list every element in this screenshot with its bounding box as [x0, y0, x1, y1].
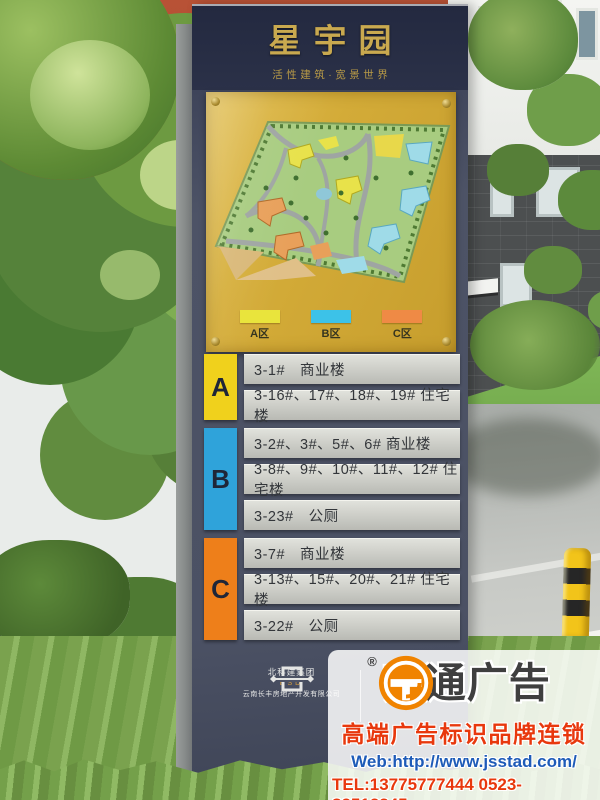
directory-row: 3-2#、3#、5#、6# 商业楼: [244, 428, 460, 458]
registered-trademark-symbol: ®: [367, 654, 377, 669]
window: [490, 177, 514, 217]
developer-logo-block: 北科建集团 BSD 云南长丰房地产开发有限公司: [243, 666, 341, 699]
directory-row: 3-1# 商业楼: [244, 354, 460, 384]
watermark-brand-row: ® 苏通广告: [377, 654, 551, 712]
developer-logo-icon: [270, 666, 314, 692]
directory-row: 3-22# 公厕: [244, 610, 460, 640]
section-rows-b: 3-2#、3#、5#、6# 商业楼 3-8#、9#、10#、11#、12# 住宅…: [244, 428, 460, 530]
right-tree: [468, 0, 578, 90]
map-legend: A区 B区 C区: [206, 306, 456, 344]
legend-label-b: B区: [322, 325, 341, 341]
legend-item-b: B区: [311, 310, 351, 341]
yellow-black-bollard: [562, 548, 591, 639]
directory-row: 3-13#、15#、20#、21# 住宅楼: [244, 574, 460, 604]
legend-swatch-a: [240, 310, 280, 323]
sign-header: 星宇园 活性建筑·宽景世界: [192, 6, 468, 90]
window: [536, 167, 580, 217]
watermark-tagline: 高端广告标识品牌连锁: [342, 715, 587, 749]
legend-item-a: A区: [240, 310, 280, 341]
sign-title: 星宇园: [257, 14, 404, 62]
sign-side-edge: [176, 24, 193, 786]
section-label-b: B: [204, 428, 237, 530]
legend-label-a: A区: [250, 325, 269, 341]
sign-subtitle: 活性建筑·宽景世界: [269, 67, 392, 82]
screw: [442, 99, 451, 108]
sutong-logo-icon: [377, 654, 435, 712]
section-rows-a: 3-1# 商业楼 3-16#、17#、18#、19# 住宅楼: [244, 354, 460, 420]
site-map-panel: A区 B区 C区: [206, 92, 456, 352]
tree-shadow-on-road: [448, 418, 600, 496]
directory-row: 3-7# 商业楼: [244, 538, 460, 568]
window: [576, 8, 598, 60]
directory-row: 3-8#、9#、10#、11#、12# 住宅楼: [244, 464, 460, 494]
watermark-telephone: TEL:13775777444 0523-82512345: [332, 775, 596, 800]
section-label-a: A: [204, 354, 237, 420]
tree-highlight: [30, 40, 150, 150]
section-label-c: C: [204, 538, 237, 640]
right-bush: [470, 300, 600, 390]
directory-row: 3-16#、17#、18#、19# 住宅楼: [244, 390, 460, 420]
legend-item-c: C区: [382, 310, 422, 341]
left-bushes: [0, 540, 130, 650]
watermark-website: Web:http://www.jsstad.com/: [351, 752, 577, 772]
screw: [211, 97, 220, 106]
legend-swatch-c: [382, 310, 422, 323]
legend-label-c: C区: [393, 325, 412, 341]
directory-section-a: A 3-1# 商业楼 3-16#、17#、18#、19# 住宅楼: [204, 354, 460, 420]
legend-swatch-b: [311, 310, 351, 323]
section-rows-c: 3-7# 商业楼 3-13#、15#、20#、21# 住宅楼 3-22# 公厕: [244, 538, 460, 640]
directory-row: 3-23# 公厕: [244, 500, 460, 530]
directory-section-c: C 3-7# 商业楼 3-13#、15#、20#、21# 住宅楼 3-22# 公…: [204, 538, 460, 640]
photo-scene: 星宇园 活性建筑·宽景世界: [0, 0, 600, 800]
building-directory: A 3-1# 商业楼 3-16#、17#、18#、19# 住宅楼 B 3-2#、…: [204, 354, 460, 640]
advertiser-watermark: ® 苏通广告 高端广告标识品牌连锁 Web:http://www.jsstad.…: [328, 650, 600, 800]
directory-section-b: B 3-2#、3#、5#、6# 商业楼 3-8#、9#、10#、11#、12# …: [204, 428, 460, 530]
